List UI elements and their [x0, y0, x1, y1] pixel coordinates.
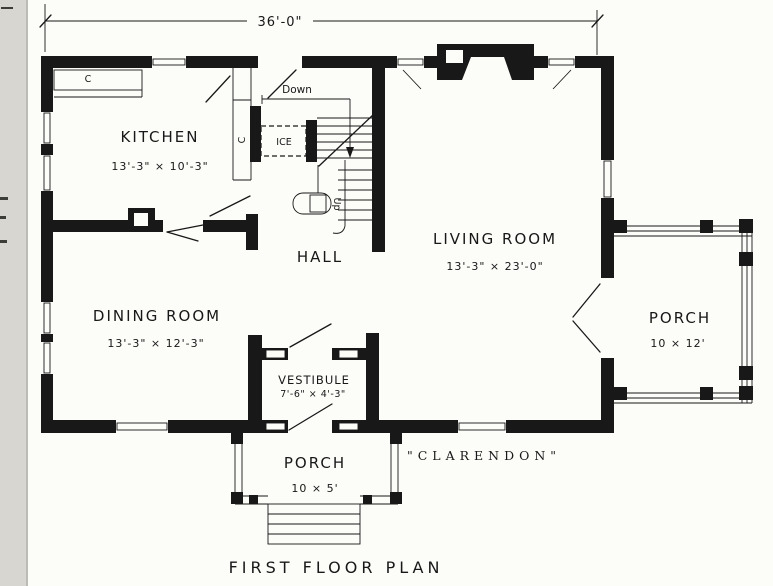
french-door-opening	[600, 278, 615, 358]
overall-dimension-label: 36'-0"	[257, 15, 302, 30]
scan-edge-artifact	[0, 0, 28, 586]
back-door-opening	[258, 54, 302, 69]
vestibule-dims: 7'-6" × 4'-3"	[280, 389, 346, 400]
kitchen-case: C	[54, 70, 142, 97]
side-porch-label: PORCH	[649, 309, 711, 327]
drawing-title: FIRST FLOOR PLAN	[229, 558, 444, 577]
side-porch-dims: 10 × 12'	[650, 337, 705, 350]
vestibule-inner-door-opening	[288, 346, 332, 362]
room-labels: KITCHEN 13'-3" × 10'-3" HALL LIVING ROOM…	[93, 128, 711, 495]
front-porch-label: PORCH	[284, 454, 346, 472]
living-room-dims: 13'-3" × 23'-0"	[446, 260, 543, 273]
staircase: Up Down	[262, 84, 374, 233]
fireplace	[437, 44, 534, 107]
french-door-leaf	[573, 321, 600, 352]
house-name: "CLARENDON"	[407, 448, 561, 463]
vestibule-label: VESTIBULE	[278, 373, 350, 387]
dining-room-dims: 13'-3" × 12'-3"	[107, 337, 204, 350]
living-room-label: LIVING ROOM	[433, 230, 557, 248]
kitchen-case-label: C	[85, 74, 92, 85]
front-porch-dims: 10 × 5'	[291, 482, 338, 495]
kitchen-dims: 13'-3" × 10'-3"	[111, 160, 208, 173]
dining-room-label: DINING ROOM	[93, 307, 221, 325]
kitchen-label: KITCHEN	[121, 128, 200, 146]
french-door-leaf	[573, 284, 600, 317]
closet-label: C	[237, 136, 248, 143]
hall-label: HALL	[297, 248, 343, 266]
stair-up-label: Up	[331, 198, 342, 211]
ice-box-label: ICE	[276, 137, 291, 148]
porch-steps	[268, 504, 360, 544]
stair-down-label: Down	[282, 84, 312, 96]
floor-plan-drawing: 36'-0"	[0, 0, 773, 586]
floor-plan-document: 36'-0"	[0, 0, 773, 586]
